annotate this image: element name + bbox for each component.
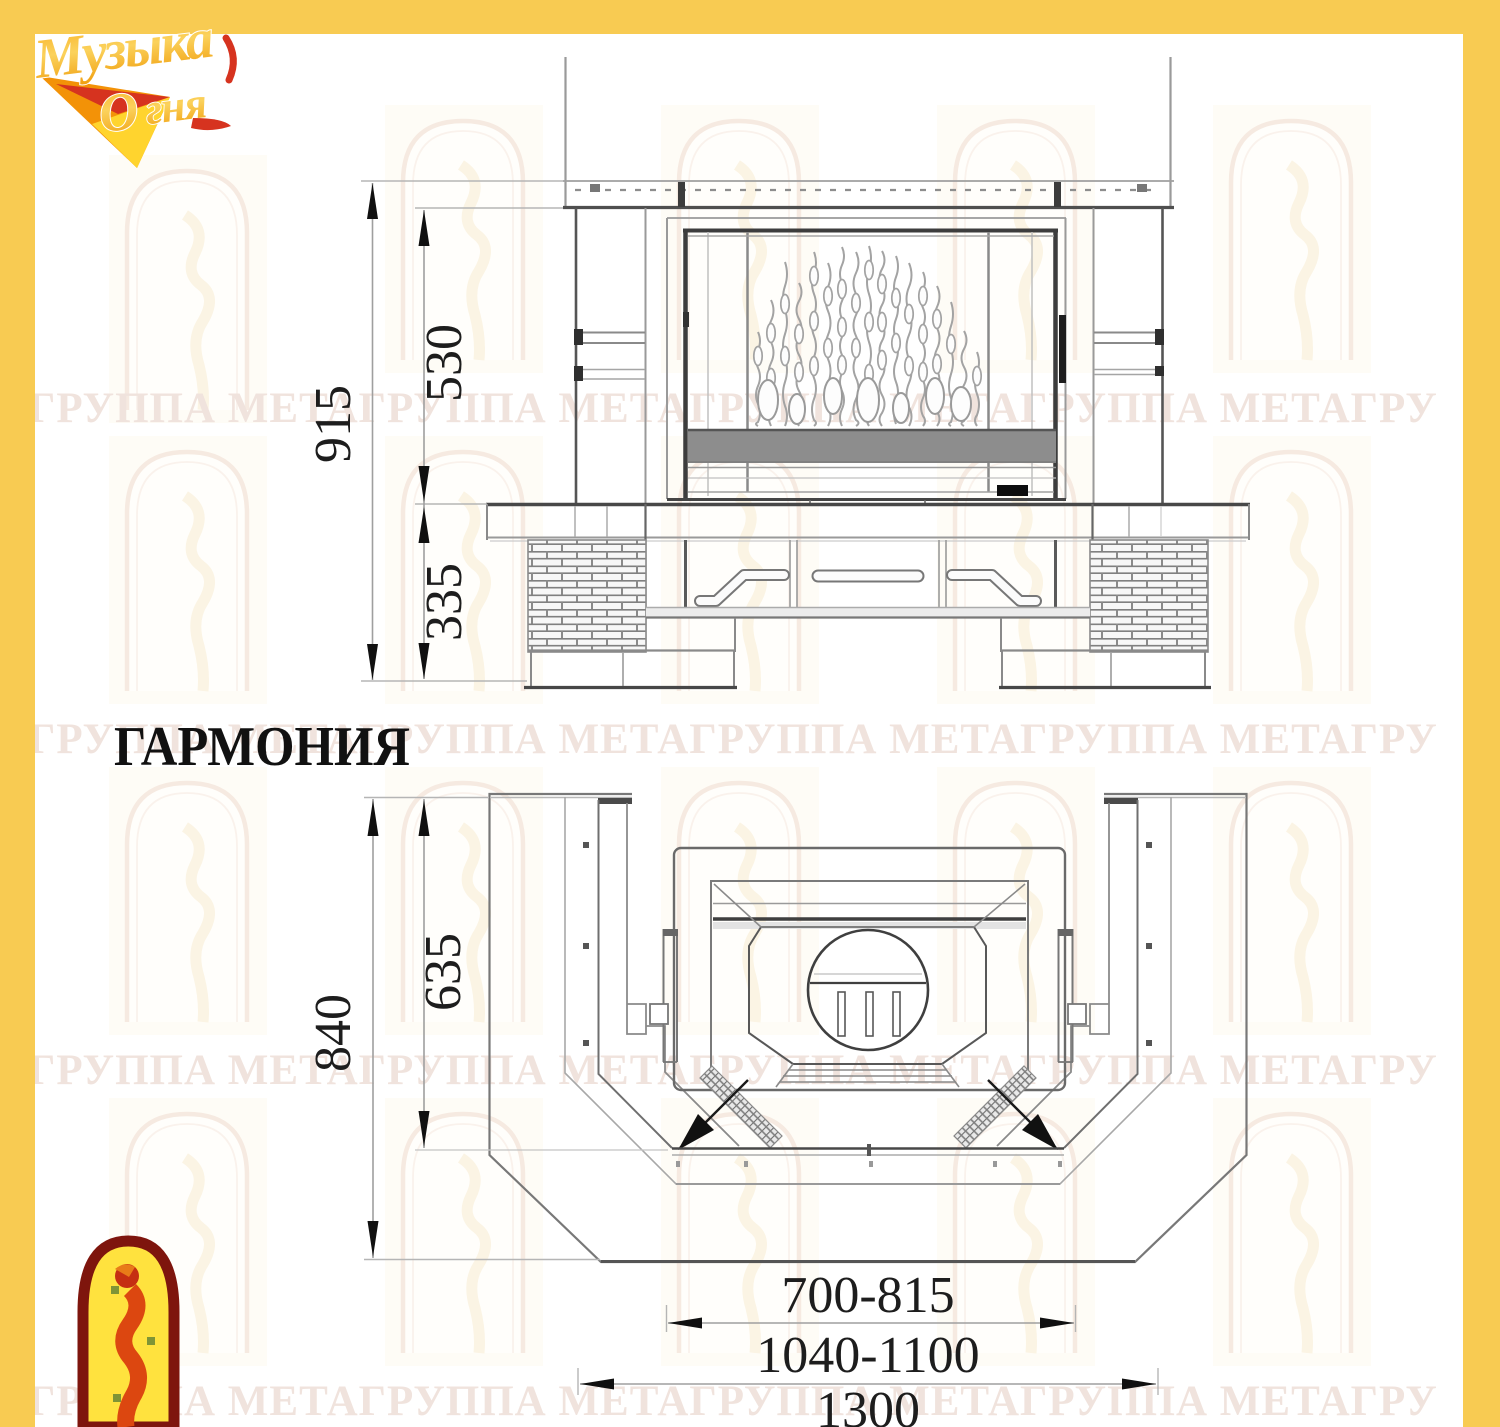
svg-text:ГРУППА МЕТАГРУППА МЕТАГРУППА М: ГРУППА МЕТАГРУППА МЕТАГРУППА МЕТАГРУППА … [28, 385, 1438, 432]
svg-text:700-815: 700-815 [781, 1267, 954, 1324]
svg-text:1040-1100: 1040-1100 [756, 1327, 979, 1384]
svg-text:ГРУППА МЕТАГРУППА МЕТАГРУППА М: ГРУППА МЕТАГРУППА МЕТАГРУППА МЕТАГРУППА … [28, 1378, 1438, 1425]
svg-text:915: 915 [305, 385, 362, 463]
svg-text:840: 840 [305, 994, 362, 1072]
svg-text:635: 635 [415, 933, 472, 1011]
svg-text:ГАРМОНИЯ: ГАРМОНИЯ [114, 716, 410, 778]
svg-text:335: 335 [416, 563, 473, 641]
svg-text:1300: 1300 [816, 1382, 920, 1427]
svg-text:О: О [96, 80, 142, 144]
svg-text:530: 530 [416, 324, 473, 402]
